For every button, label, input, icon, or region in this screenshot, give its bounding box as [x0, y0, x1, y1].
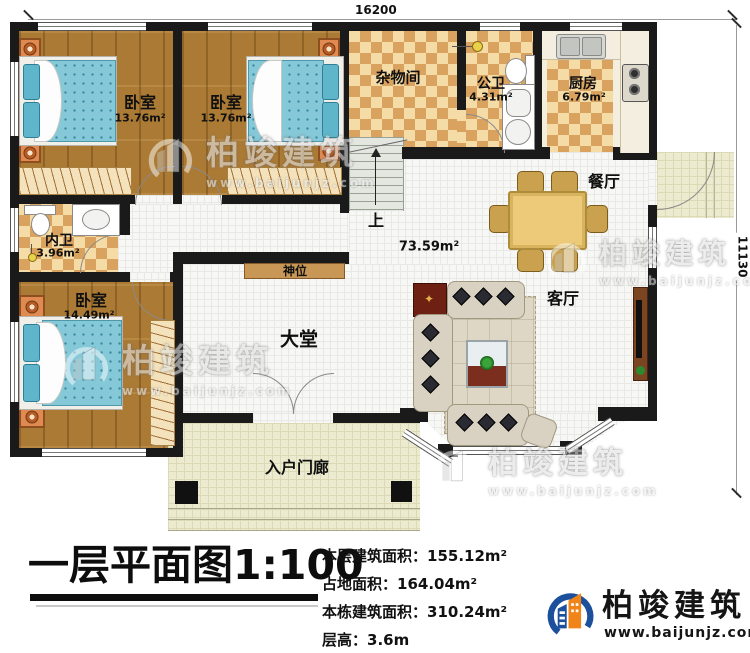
bedroom1-label: 卧室 — [124, 95, 156, 111]
bedroom1-window-left — [10, 62, 19, 136]
storage-lamp-icon — [472, 41, 483, 52]
dining-chair-right — [586, 205, 608, 233]
bedroom1-pillow-1 — [23, 64, 40, 100]
dim-label-top: 16200 — [352, 4, 400, 17]
stat-total-area-label: 本栋建筑面积： — [322, 603, 427, 621]
floor-plan-page: ✦ 卧室 13.76m² 卧室 13.76m² 杂物间 公卫 4.31m² 厨房… — [0, 0, 750, 653]
bedroom2-label: 卧室 — [210, 95, 242, 111]
stat-total-area-value: 310.24m² — [427, 603, 507, 621]
stat-land-area: 占地面积：164.04m² — [322, 573, 477, 594]
dim-label-right: 11130 — [735, 233, 748, 281]
public-bath-area: 4.31m² — [469, 92, 512, 103]
wall-right-mid — [648, 205, 657, 227]
kitchen-sink-basin-2 — [582, 37, 602, 56]
bedroom2-wardrobe — [227, 167, 342, 195]
kitchen-label: 厨房 — [569, 77, 597, 91]
brand-website: www.baijunjz.com — [604, 625, 750, 641]
storage-lamp-stem — [452, 46, 474, 47]
kitchen-floor-checker — [547, 58, 613, 160]
porch-column-right — [391, 481, 412, 502]
stat-land-area-label: 占地面积： — [322, 575, 397, 593]
bedroom3-window-left — [10, 322, 19, 402]
entry-porch-step1 — [168, 508, 420, 520]
bedroom2-blanket — [252, 60, 282, 142]
bedroom1-area: 13.76m² — [114, 113, 165, 124]
staircase-arrow-head — [371, 148, 381, 157]
bedroom3-area: 14.49m² — [63, 310, 114, 321]
public-bath-window-top — [480, 22, 520, 31]
wall-bedroom1-2-divider — [173, 22, 182, 204]
stat-floor-area-value: 155.12m² — [427, 547, 507, 565]
storage-floor — [349, 31, 457, 152]
title-underline — [30, 594, 318, 601]
dim-line-top — [28, 19, 736, 20]
dining-chair-bottom-1 — [517, 249, 544, 272]
staircase-arrow-line — [375, 153, 376, 205]
wall-bedrooms-south-a — [10, 195, 135, 204]
public-bath-door-threshold — [457, 110, 466, 147]
living-label: 客厅 — [547, 291, 579, 307]
coffee-table-plant — [480, 356, 494, 370]
kitchen-area: 6.79m² — [562, 92, 605, 103]
stat-total-area: 本栋建筑面积：310.24m² — [322, 601, 507, 622]
bedroom1-wardrobe — [19, 167, 132, 195]
inner-bath-area: 3.96m² — [36, 248, 79, 259]
porch-label: 入户门廊 — [265, 460, 329, 476]
bedroom2-pillow-1 — [322, 64, 339, 100]
stat-floor-area-label: 本层建筑面积： — [322, 547, 427, 565]
dining-chair-bottom-2 — [551, 249, 578, 272]
bedroom3-pillow-1 — [23, 324, 40, 362]
kitchen-sink-basin-1 — [560, 37, 580, 56]
stat-storey-height-value: 3.6m — [367, 631, 409, 649]
living-side-cabinet-star: ✦ — [424, 293, 434, 305]
wall-bedrooms-south-b — [222, 195, 349, 204]
porch-column-left — [175, 481, 198, 504]
inner-bath-sink — [82, 209, 110, 230]
bedroom2-area: 13.76m² — [200, 113, 251, 124]
stat-storey-height-label: 层高： — [322, 631, 367, 649]
tv-plant — [636, 366, 645, 375]
brand-logo-icon — [546, 587, 600, 641]
dining-label: 餐厅 — [588, 174, 620, 190]
bedroom3-nightstand-top — [19, 295, 45, 318]
brand-logo: 柏竣建筑 www.baijunjz.com — [546, 585, 746, 645]
title-underline-shadow — [36, 605, 318, 607]
plan-title: 一层平面图1:100 — [28, 545, 364, 586]
public-bath-label: 公卫 — [477, 77, 505, 91]
public-bath-sink-2 — [505, 119, 531, 145]
kitchen-window-top — [570, 22, 622, 31]
stat-storey-height: 层高：3.6m — [322, 629, 409, 650]
entry-door-threshold — [253, 413, 333, 423]
bedroom3-label: 卧室 — [75, 293, 107, 309]
watermark-site: www.baijunjz.com — [488, 484, 659, 498]
public-bath-toilet-bowl — [505, 58, 527, 84]
bedroom3-wardrobe — [150, 320, 175, 446]
side-door-threshold — [648, 158, 657, 205]
brand-name: 柏竣建筑 — [602, 591, 746, 622]
wall-right-upper — [648, 22, 657, 158]
wall-bedroom3-top — [10, 272, 130, 282]
kitchen-burner-1 — [629, 68, 640, 79]
bedroom3-door-threshold — [130, 272, 170, 282]
stat-land-area-value: 164.04m² — [397, 575, 477, 593]
entry-porch-step2 — [168, 520, 420, 531]
dining-window-right — [648, 227, 657, 268]
wall-storage-publicbath — [457, 22, 466, 110]
stat-floor-area: 本层建筑面积：155.12m² — [322, 545, 507, 566]
hall-label: 大堂 — [280, 331, 318, 350]
dining-table — [508, 191, 587, 250]
stairs-up-label: 上 — [368, 213, 384, 229]
storage-label: 杂物间 — [375, 71, 420, 86]
bedroom3-pillow-2 — [23, 364, 40, 402]
bedroom1-pillow-2 — [23, 102, 40, 138]
tv-screen — [636, 300, 642, 358]
bedroom2-pillow-2 — [322, 102, 339, 138]
wall-hall-bottom-left — [183, 413, 253, 423]
bedroom1-window-top — [38, 22, 146, 31]
open-area-label: 73.59m² — [399, 241, 459, 254]
bedroom2-window-top — [208, 22, 312, 31]
bedroom3-window-bottom — [42, 448, 146, 457]
inner-bath-window-left — [10, 208, 19, 252]
wall-right-lower — [648, 268, 657, 415]
shrine-label: 神位 — [283, 265, 307, 277]
kitchen-burner-2 — [629, 84, 640, 95]
